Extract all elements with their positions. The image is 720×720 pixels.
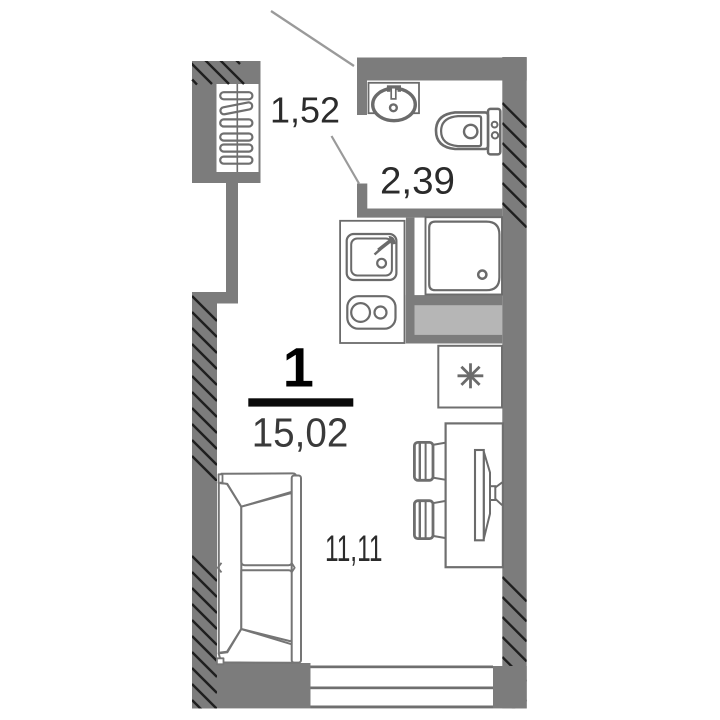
svg-text:2,39: 2,39	[380, 161, 455, 203]
svg-text:11,11: 11,11	[325, 528, 383, 569]
svg-text:1,52: 1,52	[270, 90, 340, 131]
svg-text:1: 1	[283, 336, 314, 399]
svg-text:15,02: 15,02	[252, 410, 349, 456]
